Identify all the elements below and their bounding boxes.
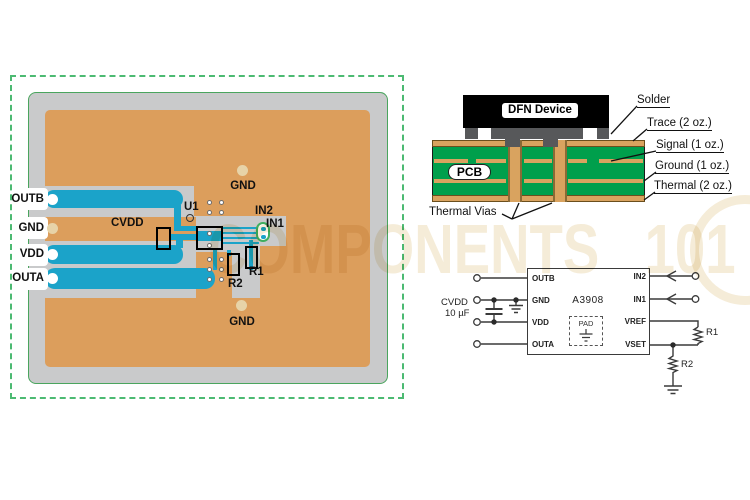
callout-leader-lines	[502, 106, 656, 219]
figure-canvas: OUTB GND VDD OUTA CVDD U1 R1 R2 IN2	[0, 0, 750, 500]
schematic-terminals	[474, 273, 699, 348]
schematic-wires	[481, 271, 702, 394]
linework-overlay	[0, 0, 750, 500]
